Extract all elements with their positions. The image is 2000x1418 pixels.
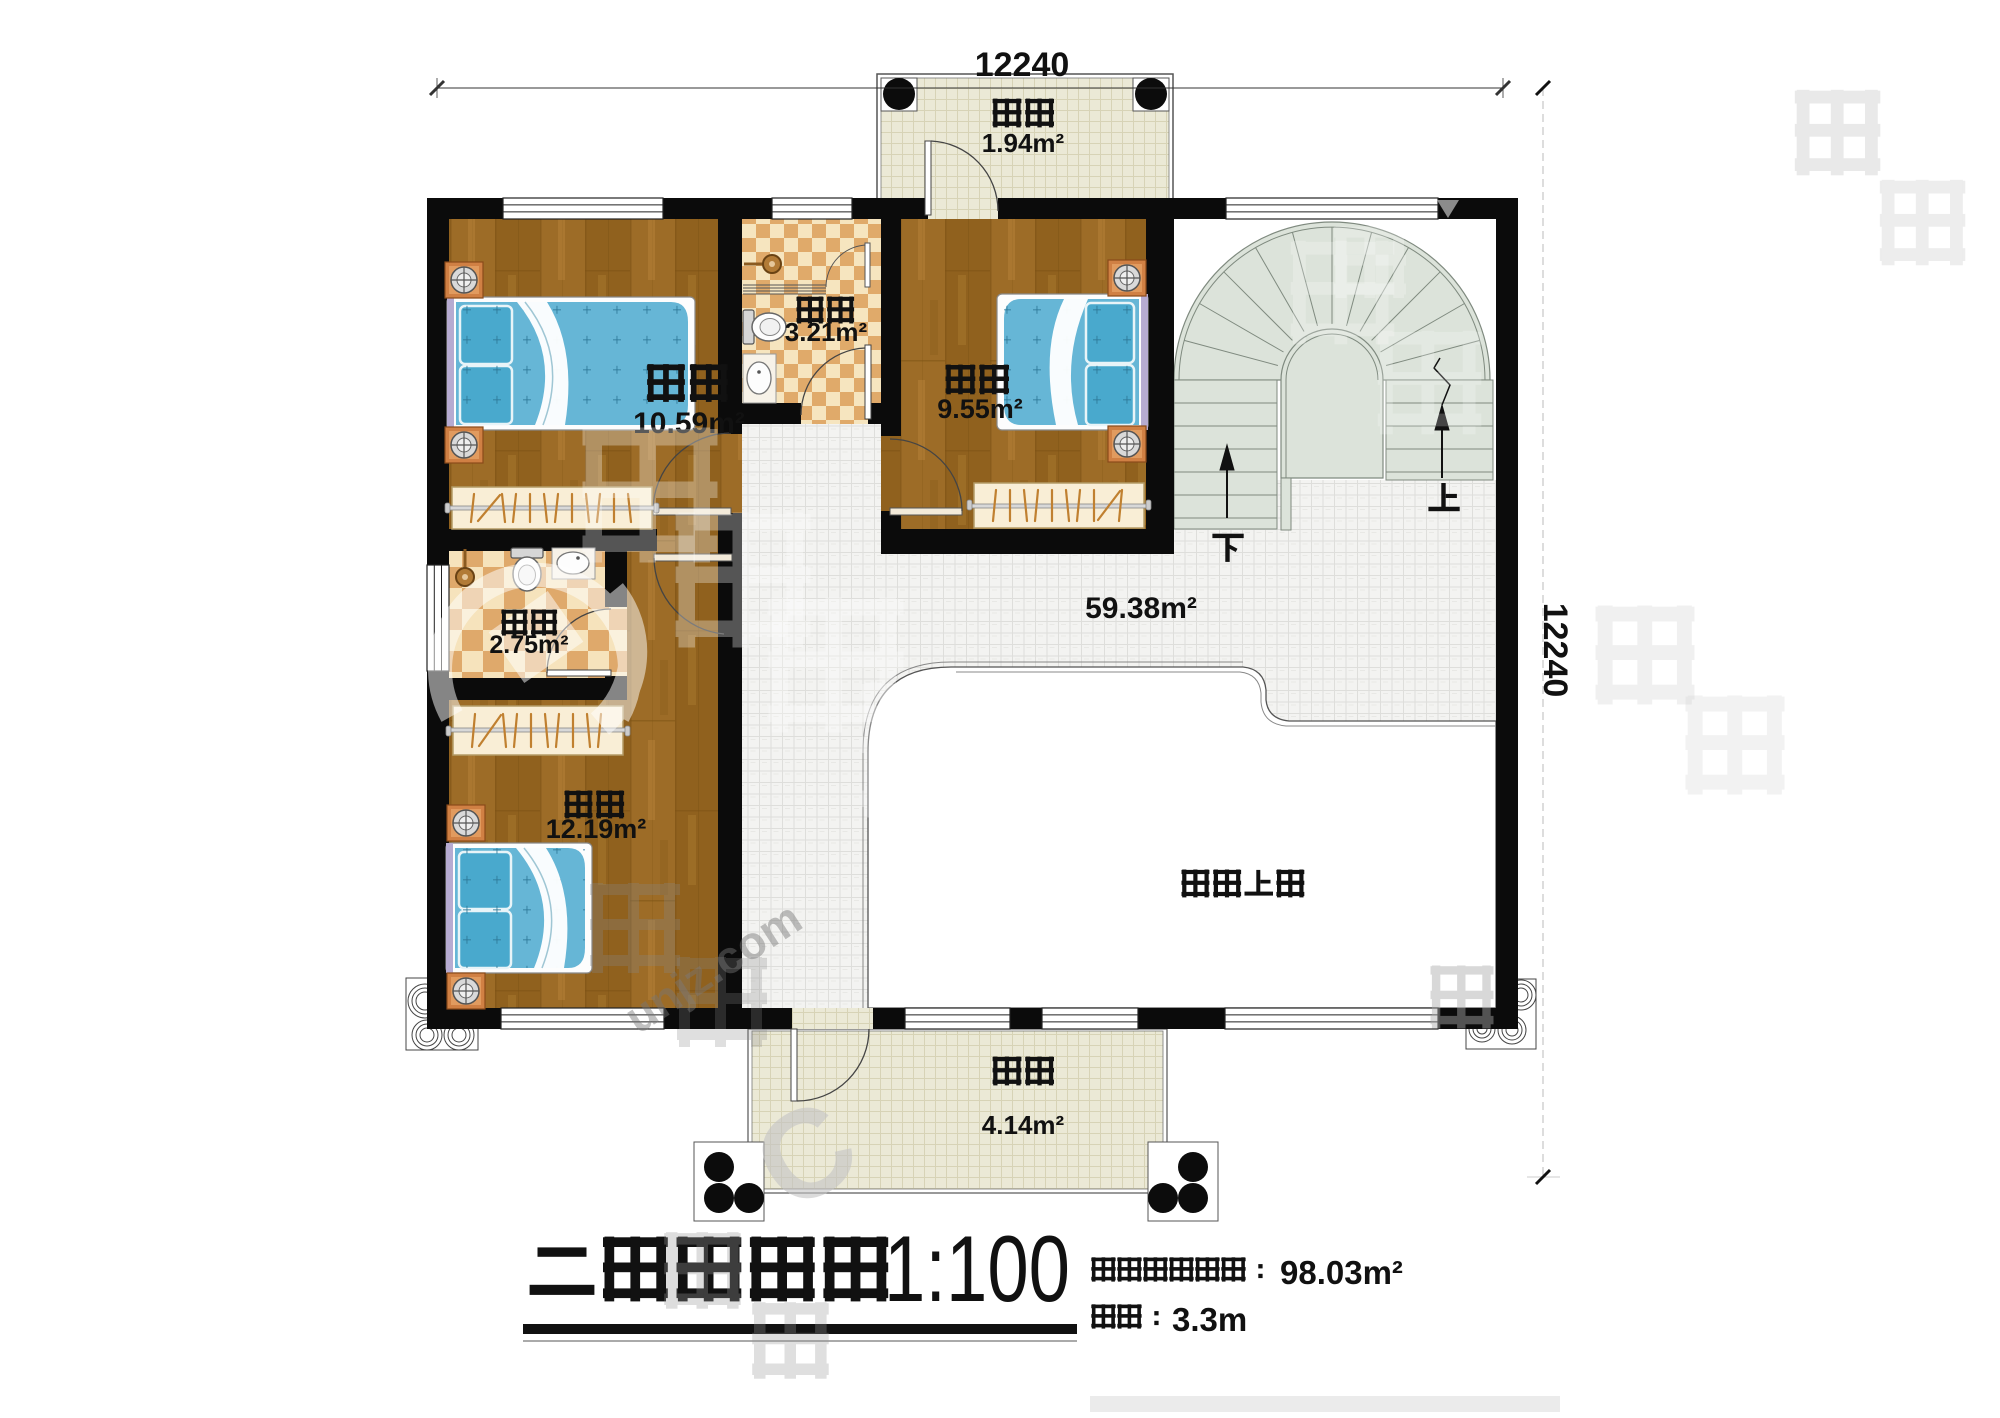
svg-text:2.75m²: 2.75m²	[489, 631, 568, 659]
svg-text:1:100: 1:100	[884, 1216, 1070, 1321]
svg-text:1.94m²: 1.94m²	[982, 128, 1065, 158]
svg-text:12.19m²: 12.19m²	[546, 814, 647, 844]
svg-text:12240: 12240	[1536, 603, 1574, 698]
svg-text:4.14m²: 4.14m²	[982, 1110, 1065, 1140]
svg-text:12240: 12240	[975, 46, 1070, 84]
svg-text:98.03m²: 98.03m²	[1280, 1254, 1403, 1291]
svg-text:3.3m: 3.3m	[1172, 1301, 1247, 1338]
svg-text:9.55m²: 9.55m²	[937, 394, 1023, 424]
svg-text:59.38m²: 59.38m²	[1085, 592, 1197, 625]
svg-text:3.21m²: 3.21m²	[785, 317, 868, 347]
